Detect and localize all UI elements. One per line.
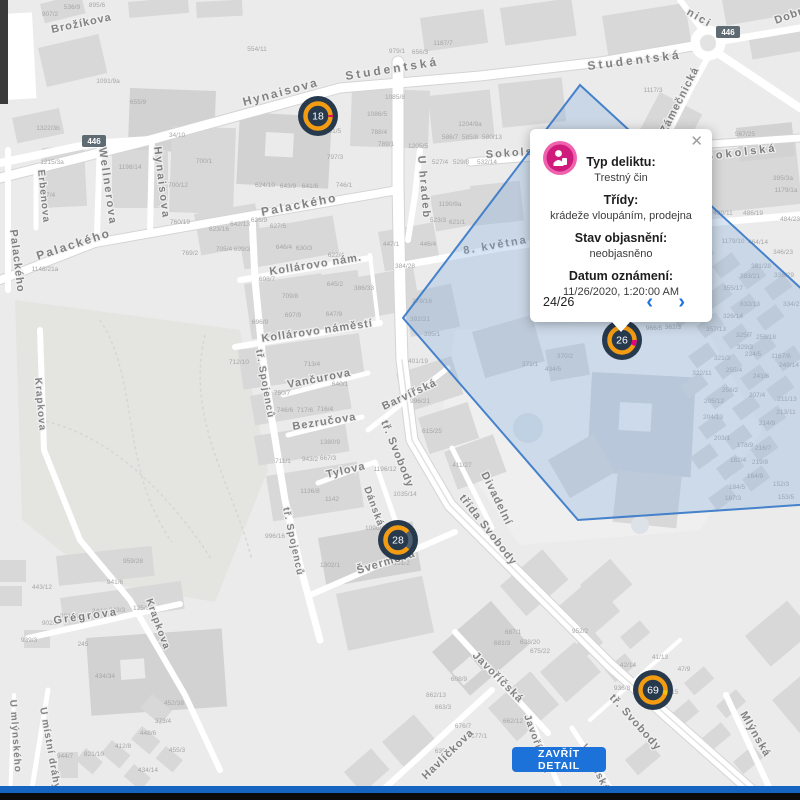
house-number: 939/3 [21, 637, 38, 644]
house-number: 580/13 [482, 134, 502, 141]
house-number: 585/8 [462, 134, 479, 141]
house-number: 554/11 [247, 46, 267, 53]
house-number: 746/6 [277, 407, 294, 414]
cluster-count: 69 [647, 685, 659, 697]
house-number: 643/9 [280, 183, 297, 190]
house-number: 936/8 [614, 685, 631, 692]
house-number: 655/9 [130, 99, 147, 106]
road-badge-label: 446 [721, 28, 735, 37]
field-label: Datum oznámení: [530, 269, 712, 283]
house-number: 624/10 [255, 182, 275, 189]
house-number: 1117/3 [644, 87, 663, 94]
house-number: 1035/14 [393, 491, 417, 498]
house-number: 641/6 [302, 183, 319, 190]
house-number: 705/4 [216, 246, 233, 253]
house-number: 401/19 [408, 358, 428, 365]
bottom-black-bar [0, 793, 800, 800]
house-number: 788/4 [371, 129, 388, 136]
cluster-count: 26 [616, 335, 628, 347]
house-number: 373/4 [155, 718, 172, 725]
cluster-marker[interactable]: 18 [298, 96, 338, 136]
bottom-blue-bar [0, 786, 800, 793]
house-number: 536/9 [64, 4, 81, 11]
house-number: 1190/9a [438, 201, 461, 208]
house-number: 1091/9a [96, 78, 120, 85]
field-value: krádeže vloupáním, prodejna [530, 210, 712, 222]
house-number: 455/3 [169, 747, 186, 754]
house-number: 713/4 [304, 361, 321, 368]
house-number: 1136/8 [300, 488, 320, 495]
house-number: 821/10 [84, 751, 104, 758]
house-number: 711/1 [275, 458, 291, 465]
house-number: 586/7 [442, 134, 459, 141]
field-value: neobjasněno [530, 248, 712, 260]
house-number: 448/6 [140, 730, 157, 737]
house-number: 697/9 [285, 312, 302, 319]
popup-footer: 24/26 ‹ › [543, 291, 699, 309]
chevron-left-icon[interactable]: ‹ [646, 293, 653, 311]
house-number: 907/2 [42, 11, 59, 18]
house-number: 395/3a [773, 175, 793, 182]
house-number: 346/23 [773, 249, 793, 256]
house-number: 447/1 [383, 241, 400, 248]
road-badge-label: 446 [87, 137, 101, 146]
house-number: 412/8 [115, 743, 132, 750]
house-number: 646/4 [276, 244, 293, 251]
house-number: 662/12 [503, 718, 523, 725]
road-badge: 446 [82, 135, 106, 147]
house-number: 446/4 [420, 241, 437, 248]
house-number: 434/34 [95, 673, 115, 680]
house-number: 434/14 [138, 767, 158, 774]
house-number: 1179/1a [774, 187, 797, 194]
house-number: 1380/9 [320, 439, 340, 446]
house-number: 42/14 [620, 662, 637, 669]
house-number: 667/3 [320, 455, 337, 462]
house-number: 979/1 [389, 48, 406, 55]
house-number: 615/25 [422, 428, 442, 435]
house-number: 663/3 [435, 704, 452, 711]
house-number: 769/2 [182, 250, 199, 257]
house-number: 687/1 [505, 629, 522, 636]
house-number: 862/13 [426, 692, 446, 699]
house-number: 789/1 [378, 141, 395, 148]
house-number: 959/28 [123, 558, 143, 565]
house-number: 41/13 [652, 654, 669, 661]
house-number: 716/4 [317, 406, 334, 413]
house-number: 1204/9a [458, 121, 482, 128]
house-number: 623/16 [209, 226, 229, 233]
house-number: 681/3 [494, 640, 511, 647]
road-badge: 446 [716, 26, 740, 38]
house-number: 696/9 [252, 319, 269, 326]
house-number: 952/2 [572, 628, 589, 635]
house-number: 630/3 [296, 245, 313, 252]
house-number: 529/8 [453, 159, 470, 166]
house-number: 943/2 [302, 456, 319, 463]
field-label: Třídy: [530, 193, 712, 207]
house-number: 567/25 [735, 131, 755, 138]
house-number: 386/33 [354, 285, 374, 292]
field-label: Stav objasnění: [530, 231, 712, 245]
cluster-count: 18 [312, 111, 324, 123]
house-number: 717/6 [297, 407, 314, 414]
house-number: 675/22 [530, 648, 550, 655]
house-number: 642/13 [230, 221, 250, 228]
house-number: 1086/5 [367, 111, 387, 118]
house-number: 760/19 [170, 219, 190, 226]
house-number: 1205/5 [408, 143, 428, 150]
house-number: 638/20 [520, 639, 540, 646]
house-number: 944/7 [57, 753, 74, 760]
crime-category-icon [542, 140, 578, 176]
close-detail-button[interactable]: ZAVŘÍT DETAIL [512, 747, 606, 772]
house-number: 627/5 [270, 223, 287, 230]
house-number: 245 [78, 641, 89, 648]
house-number: 1302/1 [320, 562, 340, 569]
house-number: 640/1 [332, 381, 349, 388]
house-number: 746/1 [336, 182, 353, 189]
house-number: 709/8 [282, 293, 299, 300]
chevron-right-icon[interactable]: › [678, 293, 685, 311]
house-number: 700/1 [196, 158, 213, 165]
house-number: 1187/7 [433, 40, 453, 47]
house-number: 647/9 [326, 311, 343, 318]
house-number: 712/10 [229, 359, 249, 366]
house-number: 411/27 [452, 462, 472, 469]
cluster-count: 28 [392, 535, 404, 547]
left-edge-strip [0, 0, 8, 104]
house-number: 621/1 [449, 219, 466, 226]
map-canvas[interactable]: 446 446 907/2536/9895/6554/11979/1656/31… [0, 0, 800, 800]
house-number: 384/28 [395, 263, 415, 270]
pagination-counter: 24/26 [543, 295, 574, 309]
house-number: 484/23 [780, 216, 800, 223]
house-number: 1198/14 [118, 164, 141, 171]
house-number: 699/3 [234, 246, 251, 253]
close-icon[interactable]: ✕ [690, 134, 703, 149]
house-number: 527/4 [432, 159, 449, 166]
house-number: 608/9 [451, 676, 468, 683]
house-number: 486/19 [743, 210, 763, 217]
house-number: 700/12 [168, 182, 188, 189]
cluster-marker[interactable]: 28 [378, 520, 418, 560]
house-number: 1142 [325, 496, 339, 503]
house-number: 1085/8 [385, 94, 405, 101]
house-number: 1148/21a [32, 266, 59, 273]
house-number: 996/16 [265, 533, 285, 540]
house-number: 47/9 [678, 666, 691, 673]
map-application: 446 446 907/2536/9895/6554/11979/1656/31… [0, 0, 800, 800]
house-number: 1215/3a [40, 159, 64, 166]
cluster-marker[interactable]: 69 [633, 670, 673, 710]
house-number: 1322/3b [36, 125, 60, 132]
house-number: 895/6 [89, 2, 106, 9]
house-number: 452/38 [164, 700, 184, 707]
house-number: 34/10 [169, 132, 186, 139]
house-number: 645/2 [327, 281, 344, 288]
popup-tail [612, 322, 630, 332]
house-number: 656/3 [412, 49, 429, 56]
house-number: 1196/12 [373, 466, 396, 473]
house-number: 443/12 [32, 584, 52, 591]
house-number: 941/6 [107, 579, 124, 586]
crime-detail-popup: ✕ Typ deliktu: Trestný čin Třídy: krádež… [530, 129, 712, 322]
house-number: 797/3 [327, 154, 344, 161]
